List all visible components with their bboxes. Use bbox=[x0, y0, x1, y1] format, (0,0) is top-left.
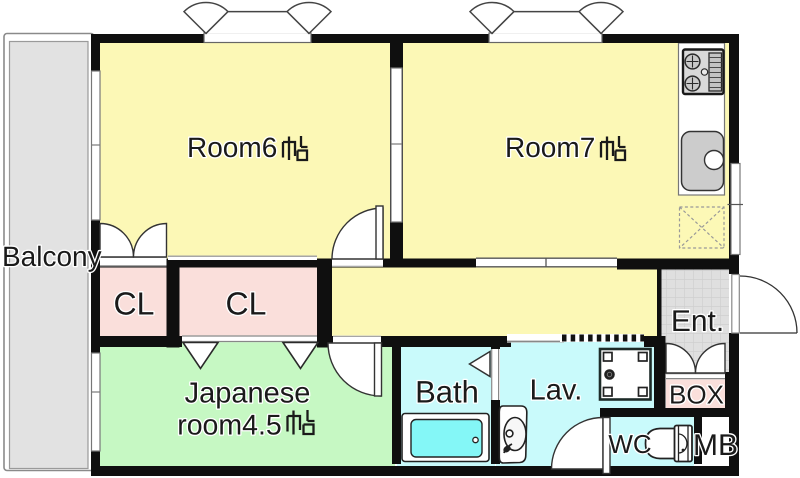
svg-text:CL: CL bbox=[226, 286, 267, 322]
svg-text:Lav.: Lav. bbox=[530, 375, 583, 407]
svg-text:Bath: Bath bbox=[415, 375, 479, 410]
svg-text:Room7: Room7 bbox=[505, 132, 595, 163]
svg-text:CL: CL bbox=[114, 286, 155, 322]
svg-text:Ent.: Ent. bbox=[671, 305, 724, 338]
svg-text:Japanese: Japanese bbox=[185, 378, 311, 410]
svg-text:Room6: Room6 bbox=[187, 132, 277, 163]
svg-text:MB: MB bbox=[693, 429, 738, 462]
svg-text:WC: WC bbox=[608, 429, 651, 459]
svg-text:BOX: BOX bbox=[669, 380, 724, 410]
svg-text:room4.5: room4.5 bbox=[177, 410, 282, 442]
svg-text:Balcony: Balcony bbox=[2, 241, 102, 272]
